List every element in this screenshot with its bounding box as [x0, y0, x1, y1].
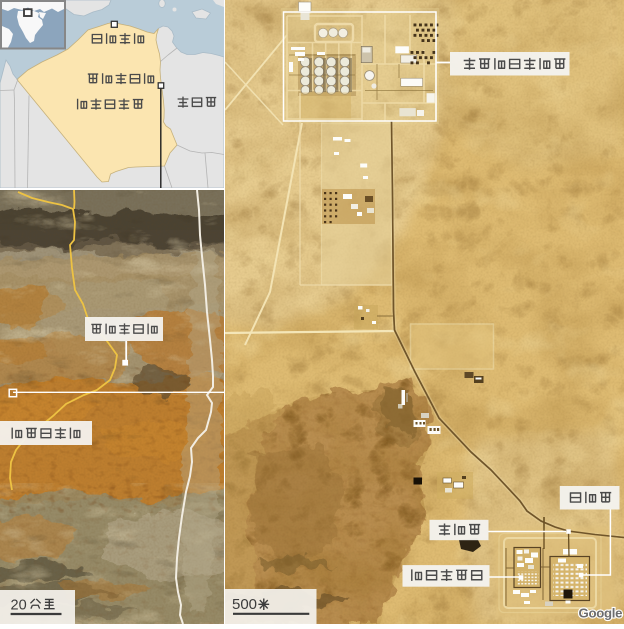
svg-text:500: 500 [232, 596, 257, 613]
svg-text:20: 20 [11, 598, 27, 614]
svg-text:Google: Google [579, 606, 623, 621]
